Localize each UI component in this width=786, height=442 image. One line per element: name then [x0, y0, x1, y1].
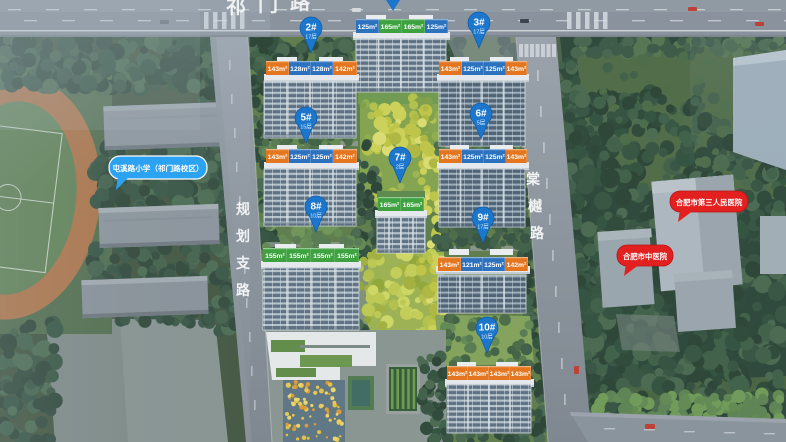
svg-text:143m²: 143m² [490, 371, 510, 378]
svg-text:125m²: 125m² [485, 66, 505, 73]
svg-text:142m²: 142m² [335, 66, 355, 73]
svg-text:10层: 10层 [481, 334, 493, 341]
svg-text:2层: 2层 [396, 164, 405, 171]
svg-text:143m²: 143m² [441, 66, 461, 73]
svg-text:125m²: 125m² [485, 154, 505, 161]
svg-text:祁: 祁 [226, 0, 246, 18]
svg-text:125m²: 125m² [358, 24, 378, 31]
svg-text:143m²: 143m² [441, 154, 461, 161]
svg-text:155m²: 155m² [265, 253, 285, 260]
svg-text:155m²: 155m² [337, 253, 357, 260]
svg-text:合肥市第三人民医院: 合肥市第三人民医院 [675, 198, 743, 207]
svg-text:17层: 17层 [477, 224, 489, 231]
svg-text:125m²: 125m² [427, 24, 447, 31]
svg-text:165m²: 165m² [380, 202, 400, 209]
svg-text:155m²: 155m² [289, 253, 309, 260]
svg-text:125m²: 125m² [463, 66, 483, 73]
svg-text:9#: 9# [477, 213, 489, 224]
svg-text:2#: 2# [305, 23, 317, 34]
svg-text:门: 门 [258, 0, 278, 16]
svg-text:10层: 10层 [310, 213, 322, 220]
svg-text:143m²: 143m² [511, 371, 531, 378]
svg-text:155m²: 155m² [313, 253, 333, 260]
svg-text:142m²: 142m² [507, 262, 527, 269]
svg-text:128m²: 128m² [290, 66, 310, 73]
svg-text:143m²: 143m² [448, 371, 468, 378]
svg-text:樾: 樾 [528, 198, 543, 214]
svg-text:5#: 5# [300, 113, 312, 124]
svg-text:10#: 10# [479, 323, 496, 334]
svg-text:支: 支 [235, 255, 251, 271]
svg-text:143m²: 143m² [440, 262, 460, 269]
svg-text:棠: 棠 [525, 171, 541, 187]
svg-text:142m²: 142m² [335, 154, 355, 161]
svg-text:路: 路 [530, 225, 545, 241]
svg-text:125m²: 125m² [290, 154, 310, 161]
svg-text:165m²: 165m² [381, 24, 401, 31]
svg-text:屯溪路小学（祁门路校区）: 屯溪路小学（祁门路校区） [112, 163, 203, 173]
svg-text:17层: 17层 [305, 34, 317, 41]
svg-text:3#: 3# [473, 18, 485, 29]
svg-text:6#: 6# [475, 109, 487, 120]
svg-text:143m²: 143m² [507, 154, 527, 161]
svg-text:17层: 17层 [473, 29, 485, 36]
svg-text:143m²: 143m² [469, 371, 489, 378]
svg-text:125m²: 125m² [312, 154, 332, 161]
svg-text:5层: 5层 [477, 120, 486, 127]
svg-text:143m²: 143m² [268, 66, 288, 73]
svg-text:8#: 8# [310, 202, 322, 213]
svg-text:7#: 7# [394, 153, 406, 164]
svg-text:128m²: 128m² [312, 66, 332, 73]
svg-text:划: 划 [236, 228, 250, 244]
svg-text:125m²: 125m² [463, 154, 483, 161]
svg-text:165m²: 165m² [403, 202, 423, 209]
svg-text:路: 路 [290, 0, 311, 14]
svg-text:143m²: 143m² [507, 66, 527, 73]
svg-text:15层: 15层 [300, 124, 312, 131]
svg-text:143m²: 143m² [268, 154, 288, 161]
svg-text:165m²: 165m² [404, 24, 424, 31]
svg-text:路: 路 [236, 282, 251, 298]
svg-text:规: 规 [236, 201, 250, 217]
svg-text:合肥市中医院: 合肥市中医院 [622, 252, 668, 261]
svg-text:121m²: 121m² [462, 262, 482, 269]
svg-text:125m²: 125m² [484, 262, 504, 269]
